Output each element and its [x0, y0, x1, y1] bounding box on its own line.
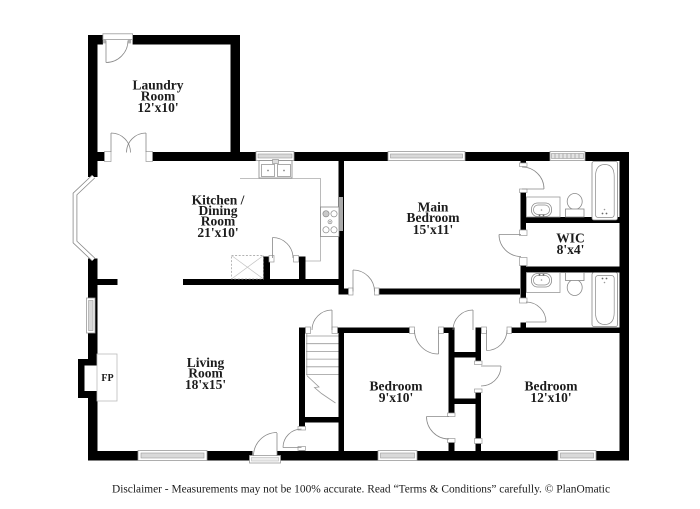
- svg-text:12'x10': 12'x10': [137, 100, 178, 115]
- svg-text:Disclaimer - Measurements may: Disclaimer - Measurements may not be 100…: [112, 484, 610, 496]
- svg-text:18'x15': 18'x15': [185, 377, 226, 392]
- svg-text:15'x11': 15'x11': [413, 222, 454, 237]
- svg-text:21'x10': 21'x10': [197, 225, 238, 240]
- svg-text:8'x4': 8'x4': [557, 242, 585, 257]
- svg-text:FP: FP: [101, 373, 113, 384]
- svg-text:9'x10': 9'x10': [379, 390, 414, 405]
- svg-text:12'x10': 12'x10': [530, 390, 571, 405]
